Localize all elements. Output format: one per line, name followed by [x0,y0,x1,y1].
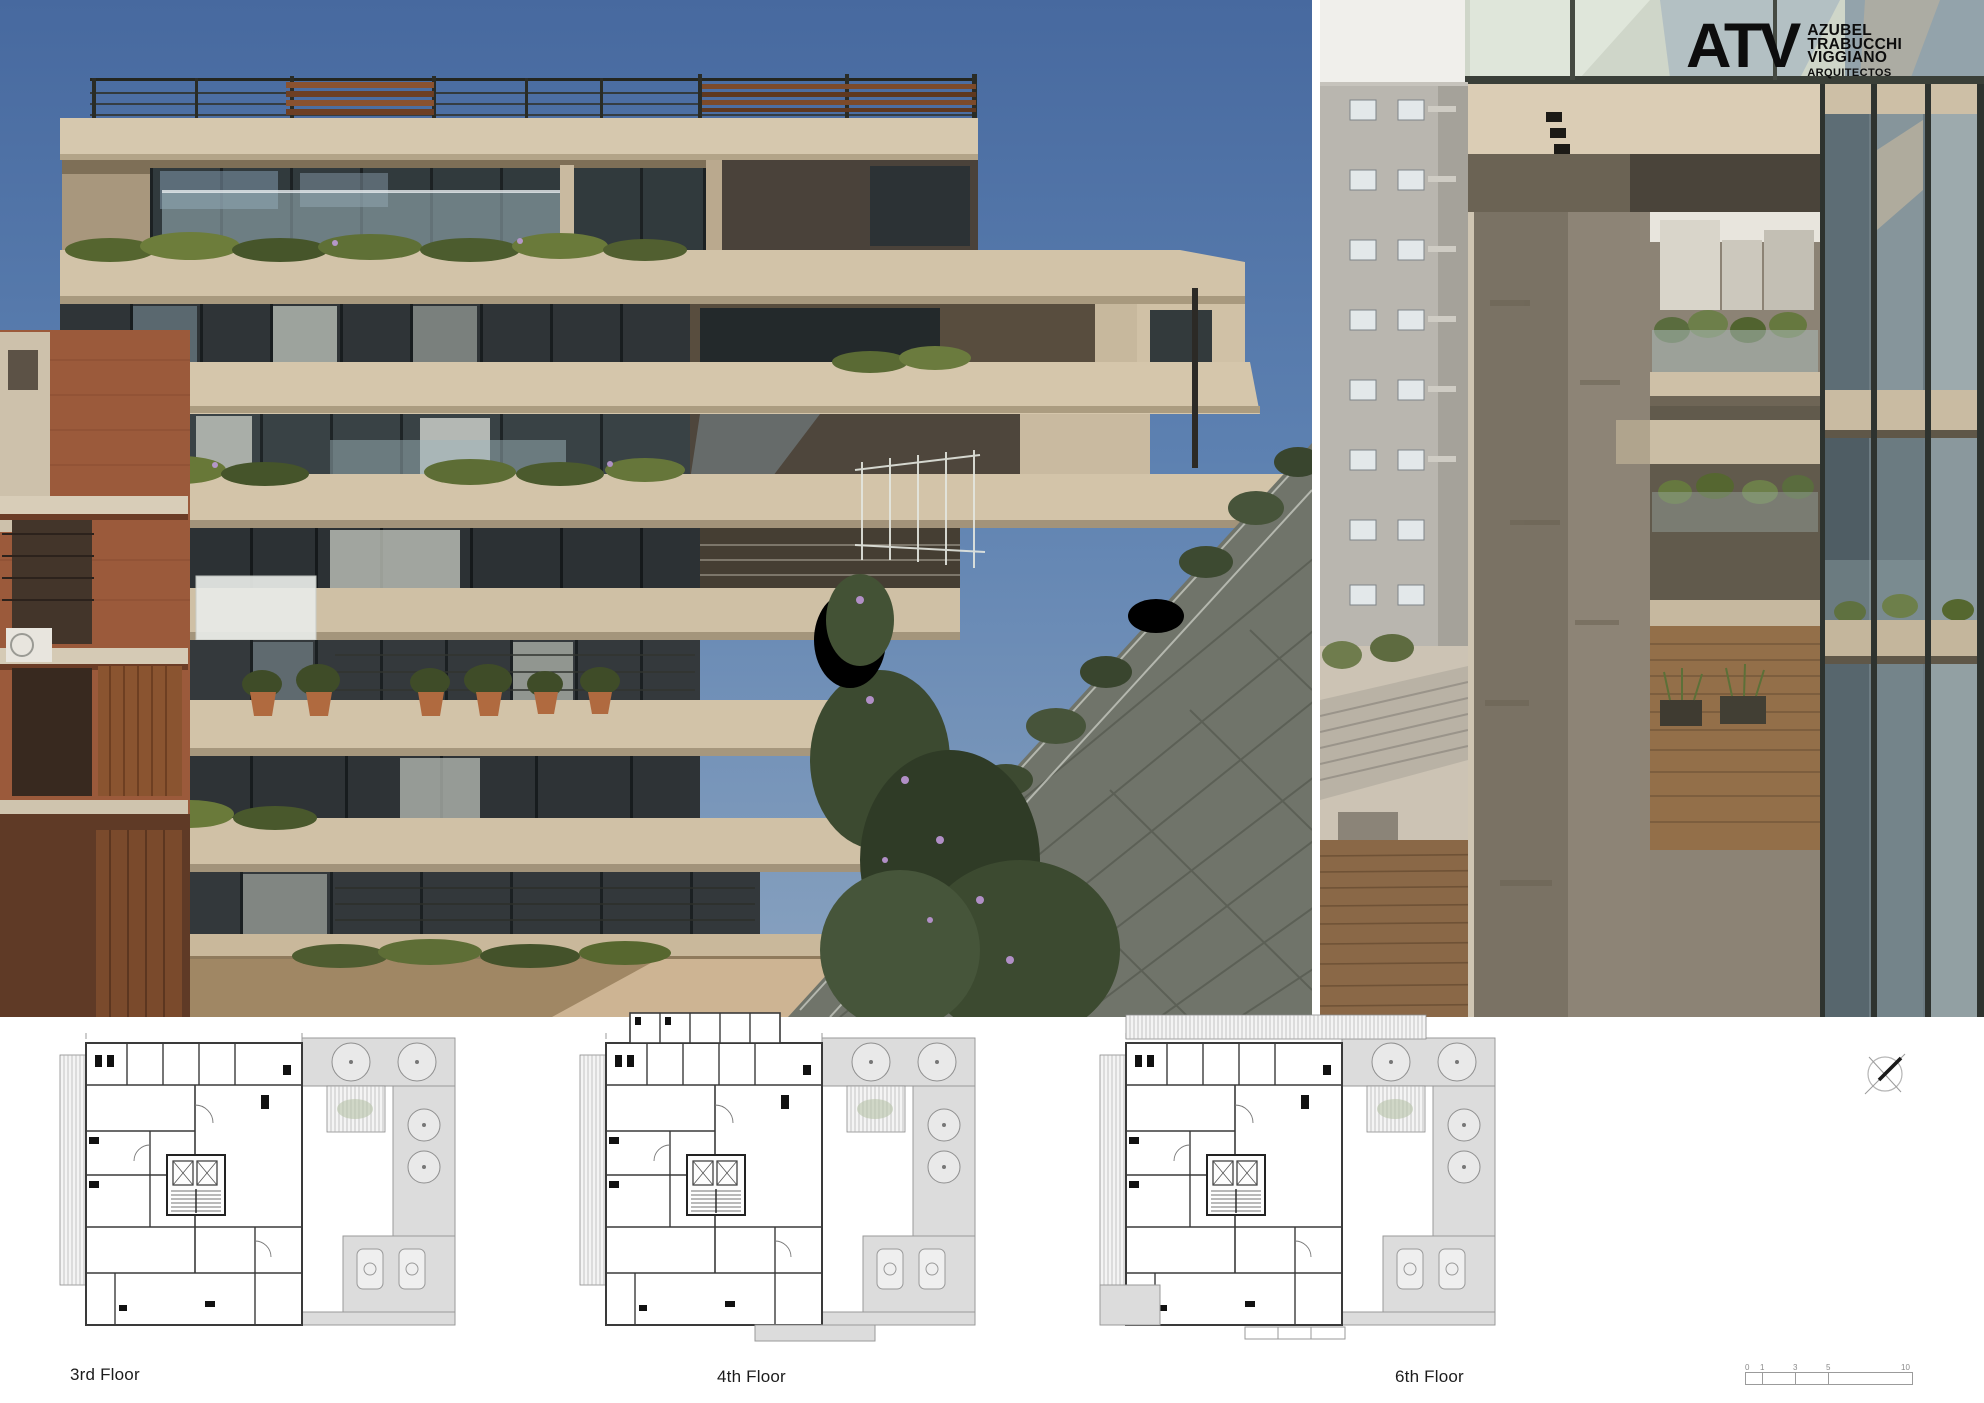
portfolio-sheet: ATV AZUBEL TRABUCCHI VIGGIANO ARQUITECTO… [0,0,1984,1403]
facade-photo [0,0,1312,1017]
floor-plan-4th [575,1005,980,1365]
low-buildings [1320,634,1468,876]
plan-label-4th: 4th Floor [717,1367,786,1387]
courtyard-photo [1320,0,1984,1017]
logo-subtitle: ARQUITECTOS [1807,68,1902,79]
brick-building [0,330,190,1017]
firm-logo: ATV AZUBEL TRABUCCHI VIGGIANO ARQUITECTO… [1686,20,1902,79]
highrise-tower [1320,82,1468,646]
courtyard-opening [1650,212,1820,1017]
ac-unit [6,628,52,662]
logo-monogram: ATV [1686,20,1798,72]
scale-tick: 0 [1745,1363,1749,1372]
concrete-column [1468,212,1650,1017]
floor-plan-6th [1095,1005,1500,1365]
north-arrow-icon [1856,1044,1914,1102]
scale-bar-rule [1745,1372,1913,1385]
scale-tick: 10 [1901,1363,1910,1372]
floor-plan-3rd [55,1005,460,1365]
plan-label-6th: 6th Floor [1395,1367,1464,1387]
plan-label-3rd: 3rd Floor [70,1365,140,1385]
scale-tick: 3 [1793,1363,1797,1372]
glass-facade [1820,84,1984,1017]
scale-tick: 5 [1826,1363,1830,1372]
logo-name-line: VIGGIANO [1807,51,1902,65]
scale-bar: 0 1 3 5 10 [1745,1363,1913,1385]
scale-tick: 1 [1760,1363,1764,1372]
